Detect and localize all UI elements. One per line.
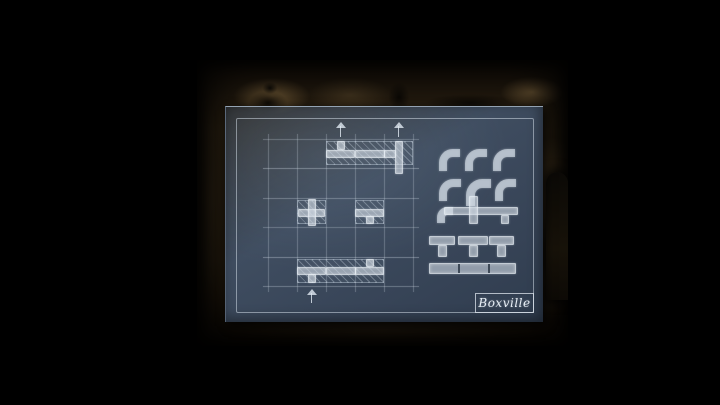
game-screen: Boxville — [0, 0, 720, 405]
flow-arrow-icon — [394, 122, 404, 137]
palette-tee-icon — [438, 245, 447, 257]
palette-pipe-joint — [458, 264, 460, 273]
grid-line — [268, 134, 269, 292]
palette-tee-icon — [497, 245, 506, 257]
grid-line — [263, 227, 419, 228]
palette-long-pipe-icon — [429, 263, 516, 274]
flow-arrow-icon — [336, 122, 346, 137]
grid-line — [413, 134, 414, 292]
pipe-tee-up-icon — [355, 267, 384, 275]
pipe-tee-down-icon — [308, 274, 316, 283]
palette-run-cross-icon — [469, 196, 478, 224]
palette-tee-icon — [469, 245, 478, 257]
palette-elbow-icon — [465, 149, 487, 171]
pipe-tee-down-icon — [366, 216, 374, 225]
grid-line — [263, 139, 419, 140]
palette-elbow-icon — [495, 179, 516, 201]
palette-pipe-joint — [488, 264, 490, 273]
flow-arrow-icon — [307, 289, 317, 303]
grid-line — [263, 198, 419, 199]
blueprint-panel[interactable]: Boxville — [225, 106, 543, 322]
location-label: Boxville — [475, 293, 534, 313]
pipe-cross-icon — [308, 199, 316, 226]
location-label-text: Boxville — [478, 296, 530, 310]
palette-run-tee-icon — [501, 215, 509, 224]
flow-arrow-head — [394, 122, 404, 128]
pipe-straight-icon — [326, 267, 356, 275]
palette-run-pipe-icon — [444, 207, 518, 215]
palette-elbow-icon — [439, 149, 460, 171]
pipe-tee-left-icon — [395, 141, 403, 174]
grid-line — [263, 257, 419, 258]
palette-elbow-icon — [493, 149, 515, 171]
pipe-tee-left-icon — [384, 150, 396, 158]
palette-tee-icon — [429, 236, 455, 245]
wall-arch-recess — [546, 172, 568, 300]
pipe-tee-up-icon — [326, 150, 355, 158]
palette-elbow-icon — [439, 179, 461, 201]
grid-line — [263, 286, 419, 287]
palette-tee-icon — [489, 236, 514, 245]
blueprint-content — [226, 107, 543, 322]
flow-arrow-head — [307, 289, 317, 295]
pipe-tee-up-icon — [337, 141, 345, 150]
pipe-tee-up-icon — [366, 259, 374, 268]
palette-tee-icon — [458, 236, 488, 245]
pipe-straight-icon — [355, 150, 385, 158]
flow-arrow-head — [336, 122, 346, 128]
